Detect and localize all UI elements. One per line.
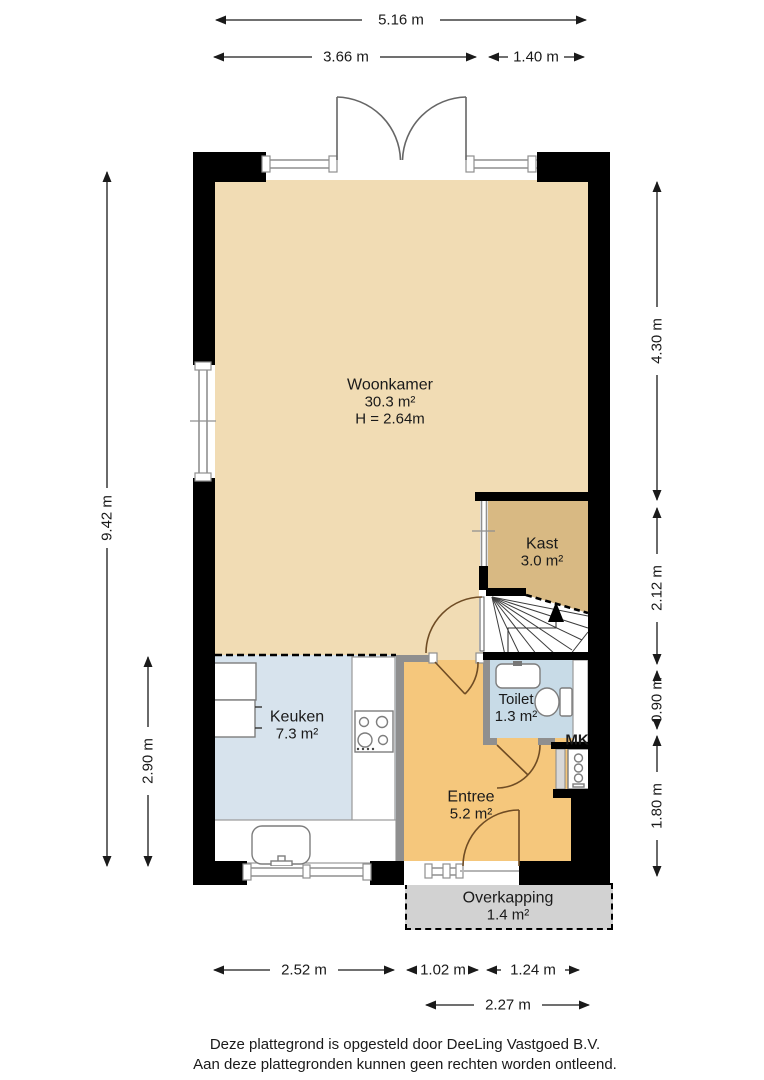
room-area: 30.3 m² <box>347 394 433 411</box>
double-garden-doors <box>337 97 466 160</box>
footer-line-2: Aan deze plattegronden kunnen geen recht… <box>193 1055 617 1075</box>
dim-bottom-total: 2.27 m <box>485 997 531 1014</box>
dim-right-bottom: 1.80 m <box>649 783 666 829</box>
meterkast-label: MK <box>565 732 588 749</box>
kitchen-appliance-bottom <box>214 700 255 737</box>
washbasin <box>496 661 540 688</box>
kitchen-appliance-top <box>214 663 256 700</box>
toilet-label: Toilet 1.3 m² <box>495 692 538 726</box>
room-name: Toilet <box>495 692 538 709</box>
room-name: Kast <box>521 536 564 554</box>
dim-left-total: 9.42 m <box>99 495 116 541</box>
dim-left-lower: 2.90 m <box>140 738 157 784</box>
woonkamer-label: Woonkamer 30.3 m² H = 2.64m <box>347 376 433 428</box>
overkapping-label: Overkapping 1.4 m² <box>463 890 554 925</box>
room-area: 7.3 m² <box>270 727 324 744</box>
dim-right-toilet: 0.90 m <box>649 677 666 723</box>
room-height: H = 2.64m <box>347 411 433 428</box>
dim-bottom-keuken: 2.52 m <box>281 962 327 979</box>
kitchen-sink <box>252 826 310 870</box>
floorplan-page: Woonkamer 30.3 m² H = 2.64m Kast 3.0 m² … <box>0 0 764 1080</box>
keuken-label: Keuken 7.3 m² <box>270 709 324 744</box>
kast-label: Kast 3.0 m² <box>521 536 564 571</box>
footer-disclaimer: Deze plattegrond is opgesteld door DeeLi… <box>193 1035 617 1074</box>
room-name: Woonkamer <box>347 376 433 394</box>
window-top-left <box>262 156 337 172</box>
room-area: 5.2 m² <box>447 807 494 824</box>
cooktop <box>355 711 393 752</box>
room-area: 1.4 m² <box>463 908 554 925</box>
shaft <box>573 660 588 742</box>
room-name: Keuken <box>270 709 324 727</box>
meter-cupboard <box>556 749 589 789</box>
window-front-sidelight <box>425 864 463 878</box>
room-name: Overkapping <box>463 890 554 908</box>
window-top-right <box>466 156 537 172</box>
dim-bottom-door: 1.02 m <box>420 962 466 979</box>
dim-right-mid: 2.12 m <box>649 565 666 611</box>
entree-label: Entree 5.2 m² <box>447 789 494 824</box>
room-area: 1.3 m² <box>495 709 538 726</box>
dim-right-top: 4.30 m <box>649 318 666 364</box>
room-name: Entree <box>447 789 494 807</box>
footer-line-1: Deze plattegrond is opgesteld door DeeLi… <box>193 1035 617 1055</box>
toilet-bowl <box>535 688 572 716</box>
dim-bottom-right: 1.24 m <box>510 962 556 979</box>
window-left <box>190 362 216 481</box>
dim-top-right: 1.40 m <box>513 49 559 66</box>
window-bottom <box>243 864 371 880</box>
dim-top-left: 3.66 m <box>323 49 369 66</box>
dim-top-total: 5.16 m <box>378 12 424 29</box>
room-area: 3.0 m² <box>521 554 564 571</box>
